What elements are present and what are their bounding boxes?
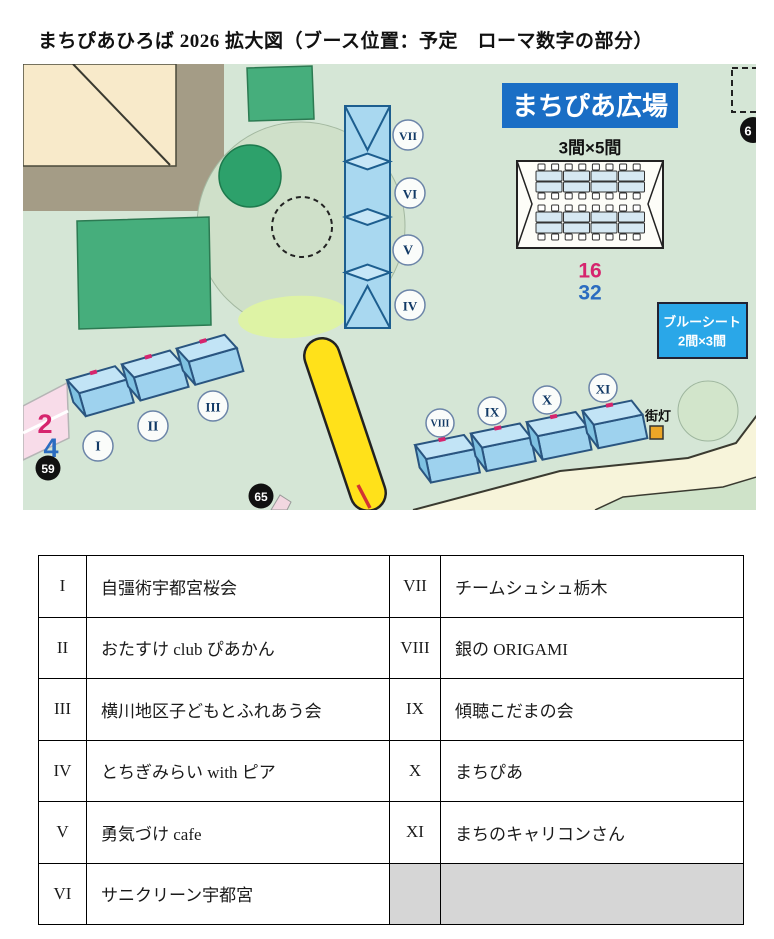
booth-num: VI (39, 863, 87, 925)
count-blue: 32 (578, 282, 601, 305)
bluesheet-box (658, 303, 747, 358)
booth-name: 銀の ORIGAMI (441, 617, 744, 679)
column-booth-row (345, 106, 390, 328)
table-row: IV とちぎみらい with ピア X まちぴあ (39, 740, 744, 802)
booth-num: III (39, 679, 87, 741)
site-map: 2 4 VII VI V IV I II III (23, 64, 756, 510)
booth-num: IX (390, 679, 441, 741)
bluesheet-line1: ブルーシート (663, 315, 741, 330)
green-plot-left (77, 217, 211, 329)
booth-label-iv: IV (403, 299, 418, 314)
streetlamp-icon (650, 426, 663, 439)
booth-name: 勇気づけ cafe (87, 802, 390, 864)
marker-59: 59 (41, 462, 55, 476)
booth-num: X (390, 740, 441, 802)
plaza-banner-label: まちぴあ広場 (512, 91, 668, 121)
booth-label-v: V (403, 244, 413, 259)
booth-num-empty (390, 863, 441, 925)
booth-label-viii: VIII (431, 419, 450, 430)
tree-circle (219, 145, 281, 207)
booth-label-vii: VII (399, 129, 417, 143)
booth-num: I (39, 556, 87, 618)
booth-num: II (39, 617, 87, 679)
booth-label-xi: XI (596, 382, 610, 397)
table-row: V 勇気づけ cafe XI まちのキャリコンさん (39, 802, 744, 864)
booth-label-i: I (95, 440, 100, 455)
booth-num: XI (390, 802, 441, 864)
booth-name: 横川地区子どもとふれあう会 (87, 679, 390, 741)
booth-name: まちのキャリコンさん (441, 802, 744, 864)
bluesheet-line2: 2間×3間 (678, 334, 726, 349)
booth-label-vi: VI (403, 187, 417, 202)
central-tent-diagram (517, 161, 663, 248)
booth-name: 自彊術宇都宮桜会 (87, 556, 390, 618)
booth-assignment-table: I 自彊術宇都宮桜会 VII チームシュシュ栃木 II おたすけ club ぴあ… (38, 555, 744, 925)
table-row: I 自彊術宇都宮桜会 VII チームシュシュ栃木 (39, 556, 744, 618)
green-plot-top (247, 66, 314, 121)
booth-name: 傾聴こだまの会 (441, 679, 744, 741)
booth-num: IV (39, 740, 87, 802)
shrub-circle (678, 381, 738, 441)
booth-num: VII (390, 556, 441, 618)
booth-name: おたすけ club ぴあかん (87, 617, 390, 679)
booth-label-iii: III (205, 400, 220, 415)
booth-label-ix: IX (485, 405, 500, 420)
table-row: III 横川地区子どもとふれあう会 IX 傾聴こだまの会 (39, 679, 744, 741)
count-pink: 16 (578, 260, 601, 283)
booth-name: サニクリーン宇都宮 (87, 863, 390, 925)
marker-6: 6 (744, 124, 751, 139)
marker-65: 65 (254, 490, 268, 504)
booth-label-ii: II (148, 420, 159, 435)
booth-label-x: X (542, 394, 552, 409)
building-roof (23, 64, 176, 166)
booth-num: V (39, 802, 87, 864)
streetlamp-label: 街灯 (644, 409, 671, 424)
booth-name: まちぴあ (441, 740, 744, 802)
table-row: VI サニクリーン宇都宮 (39, 863, 744, 925)
page-title: まちぴあひろば 2026 拡大図（ブース位置：予定 ローマ数字の部分） (38, 26, 738, 53)
booth-name: チームシュシュ栃木 (441, 556, 744, 618)
table-row: II おたすけ club ぴあかん VIII 銀の ORIGAMI (39, 617, 744, 679)
booth-num: VIII (390, 617, 441, 679)
booth-name: とちぎみらい with ピア (87, 740, 390, 802)
booth-name-empty (441, 863, 744, 925)
tent-size-label: 3間×5間 (559, 139, 622, 158)
